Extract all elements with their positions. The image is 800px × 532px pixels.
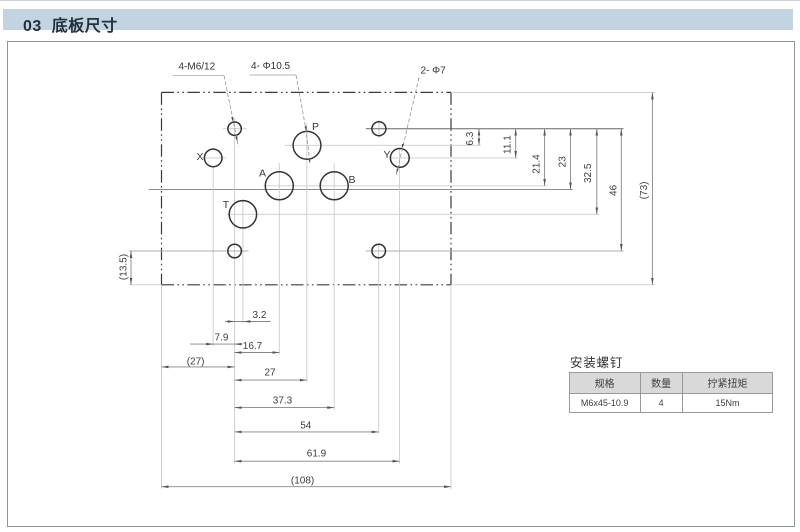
svg-text:(13.5): (13.5) <box>118 254 129 280</box>
svg-text:X: X <box>196 151 203 163</box>
svg-text:A: A <box>259 168 266 180</box>
svg-text:16.7: 16.7 <box>243 341 263 352</box>
svg-text:(108): (108) <box>291 476 314 487</box>
svg-text:6.3: 6.3 <box>465 131 476 145</box>
svg-text:Y: Y <box>383 149 390 161</box>
svg-text:2- Φ7: 2- Φ7 <box>421 66 447 77</box>
svg-text:P: P <box>312 121 319 133</box>
svg-text:54: 54 <box>300 420 312 431</box>
svg-text:4-M6/12: 4-M6/12 <box>179 62 216 73</box>
svg-text:B: B <box>348 174 355 186</box>
svg-text:11.1: 11.1 <box>502 135 513 154</box>
svg-text:7.9: 7.9 <box>215 333 229 344</box>
svg-text:32.5: 32.5 <box>583 163 594 183</box>
svg-text:3.2: 3.2 <box>253 310 267 321</box>
svg-text:21.4: 21.4 <box>531 154 542 174</box>
svg-text:46: 46 <box>608 184 619 196</box>
svg-text:23: 23 <box>557 156 568 168</box>
svg-text:37.3: 37.3 <box>273 396 293 407</box>
svg-text:4- Φ10.5: 4- Φ10.5 <box>251 61 291 72</box>
svg-text:(73): (73) <box>639 182 650 200</box>
svg-text:61.9: 61.9 <box>307 449 327 460</box>
svg-text:(27): (27) <box>187 356 205 367</box>
svg-text:T: T <box>223 199 230 211</box>
svg-text:27: 27 <box>264 368 276 379</box>
